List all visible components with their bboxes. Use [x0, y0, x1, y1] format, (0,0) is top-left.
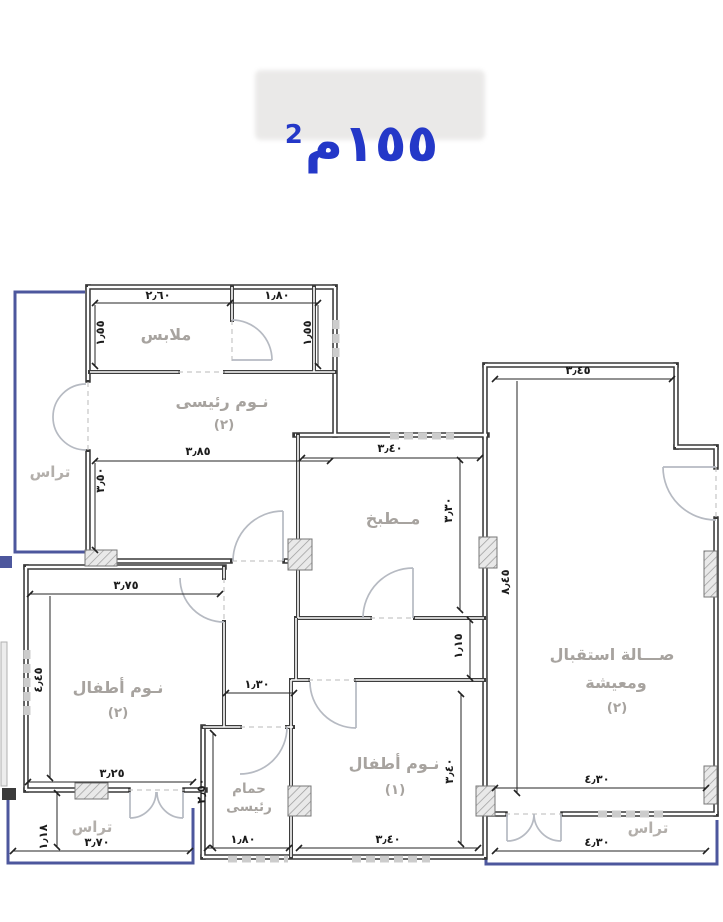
dim-kids2-width-bottom: ٣٫٢٥ [99, 766, 124, 780]
dim-closet-height: ١٫٥٥ [93, 320, 107, 345]
dim-bath-width: ١٫٨٠ [230, 832, 255, 846]
dim-reception-width-bottom: ٤٫٣٠ [584, 772, 609, 786]
room-label-master-bedroom: نـوم رئيسى [175, 392, 268, 411]
dim-kitchen-width: ٣٫٤٠ [377, 441, 402, 455]
room-label-terrace-left: تراس [30, 463, 71, 481]
floor-plan-drawing: ٢٫٦٠ ١٫٨٠ ١٫٥٥ ١٫٥٥ ٣٫٨٥ ٣٫٥٠ ٣٫٤٠ ٣٫٣٠ … [0, 0, 723, 922]
dim-terrace-right-width: ٤٫٣٠ [584, 835, 609, 849]
room-label-closet: ملابس [141, 325, 192, 344]
dim-hall-width: ١٫٣٠ [244, 677, 269, 691]
dim-reception-height: ٨٫٤٥ [498, 569, 512, 594]
dim-terrace-left-height: ١٫١٨ [36, 824, 50, 849]
room-label-terrace-bottom-right: تراس [628, 819, 669, 837]
dim-closet-width: ٢٫٦٠ [145, 288, 170, 302]
dim-master-width: ٣٫٨٥ [185, 444, 210, 458]
room-label-kids-bedroom-2: نـوم أطفال [73, 677, 164, 697]
room-label-terrace-bottom-left: تراس [72, 818, 113, 836]
dim-kitchen-height: ٣٫٣٠ [441, 497, 455, 522]
room-label-kids-bedroom-1: نـوم أطفال [349, 753, 440, 773]
dim-kids2-height: ٤٫٤٥ [31, 667, 45, 692]
room-label-reception-1: صـــالة استقبال [550, 645, 675, 664]
dim-passage-height: ١٫١٥ [451, 633, 465, 658]
room-label-master-bedroom-number: (٢) [214, 417, 235, 433]
room-label-kitchen: مــطبخ [366, 509, 421, 528]
room-label-master-bath-2: رئيسى [226, 799, 272, 815]
dim-kids1-height: ٣٫٤٠ [442, 758, 456, 783]
dim-kids2-width-top: ٣٫٧٥ [113, 578, 138, 592]
dim-dressing-width: ١٫٨٠ [264, 288, 289, 302]
room-label-master-bath-1: حمام [232, 781, 266, 797]
dim-master-height: ٣٫٥٠ [93, 467, 107, 492]
dim-dressing-height: ١٫٥٥ [300, 320, 314, 345]
dim-reception-width: ٣٫٤٥ [565, 363, 590, 377]
dim-bath-height: ٢٫٥٠ [194, 778, 208, 803]
room-label-reception-2: ومعيشة [585, 673, 646, 692]
dim-terrace-left-width: ٣٫٧٠ [84, 835, 109, 849]
room-label-kids-bedroom-2-number: (٢) [108, 705, 129, 721]
room-label-kids-bedroom-1-number: (١) [385, 782, 406, 798]
floor-plan-page: ١٥٥م2 [0, 0, 723, 922]
room-label-reception-number: (٢) [607, 700, 628, 716]
dim-kids1-width: ٣٫٤٠ [375, 832, 400, 846]
